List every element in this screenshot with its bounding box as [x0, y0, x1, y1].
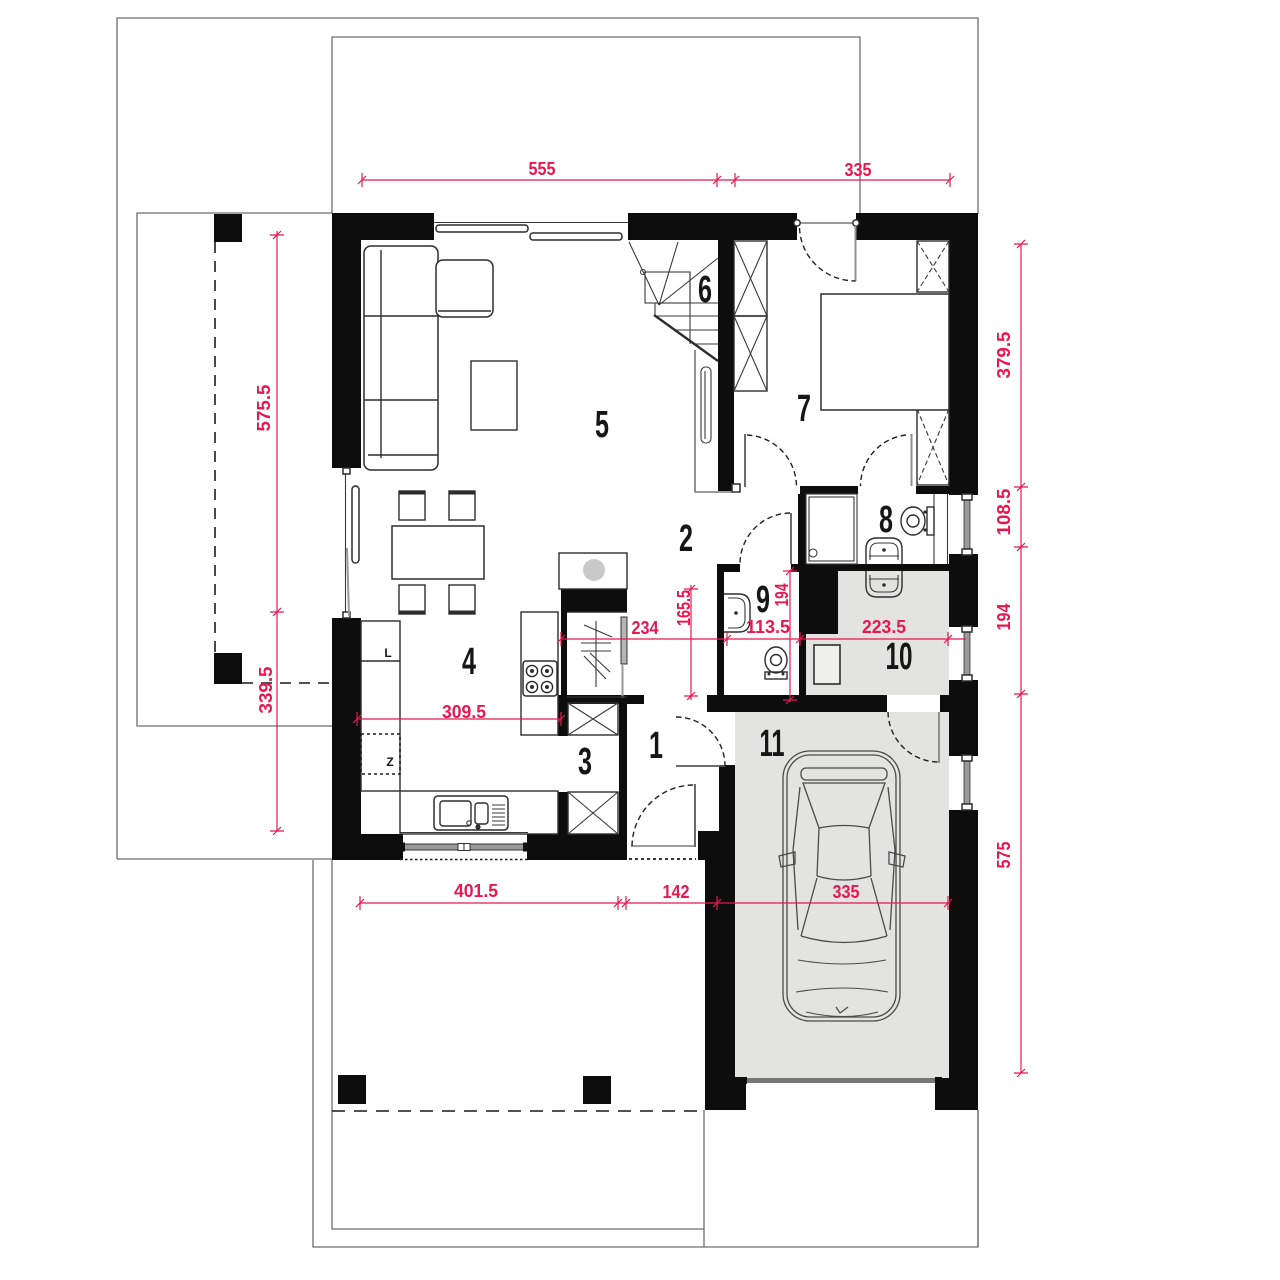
- svg-text:194: 194: [772, 584, 792, 607]
- svg-text:575: 575: [994, 842, 1014, 869]
- svg-text:335: 335: [833, 882, 860, 902]
- svg-text:6: 6: [698, 269, 712, 311]
- svg-text:Z: Z: [386, 755, 393, 769]
- svg-text:5: 5: [595, 404, 609, 446]
- svg-text:2: 2: [679, 518, 693, 560]
- svg-text:9: 9: [756, 579, 770, 621]
- svg-text:165.5: 165.5: [674, 590, 694, 626]
- svg-text:194: 194: [994, 604, 1014, 631]
- svg-text:309.5: 309.5: [442, 702, 486, 722]
- svg-text:4: 4: [462, 641, 476, 683]
- svg-text:10: 10: [886, 636, 913, 678]
- svg-text:234: 234: [632, 618, 659, 638]
- svg-text:7: 7: [797, 388, 811, 430]
- svg-text:555: 555: [529, 159, 556, 179]
- svg-text:108.5: 108.5: [994, 489, 1014, 536]
- svg-text:575.5: 575.5: [254, 385, 274, 432]
- svg-text:8: 8: [879, 499, 893, 541]
- svg-text:11: 11: [760, 723, 785, 765]
- svg-text:223.5: 223.5: [862, 617, 906, 637]
- svg-text:379.5: 379.5: [994, 332, 1014, 379]
- svg-text:335: 335: [845, 160, 872, 180]
- svg-text:142: 142: [663, 882, 690, 902]
- svg-text:339.5: 339.5: [256, 667, 276, 714]
- svg-text:1: 1: [649, 725, 663, 767]
- svg-text:3: 3: [578, 741, 592, 783]
- svg-text:401.5: 401.5: [454, 881, 498, 901]
- svg-text:L: L: [384, 646, 391, 660]
